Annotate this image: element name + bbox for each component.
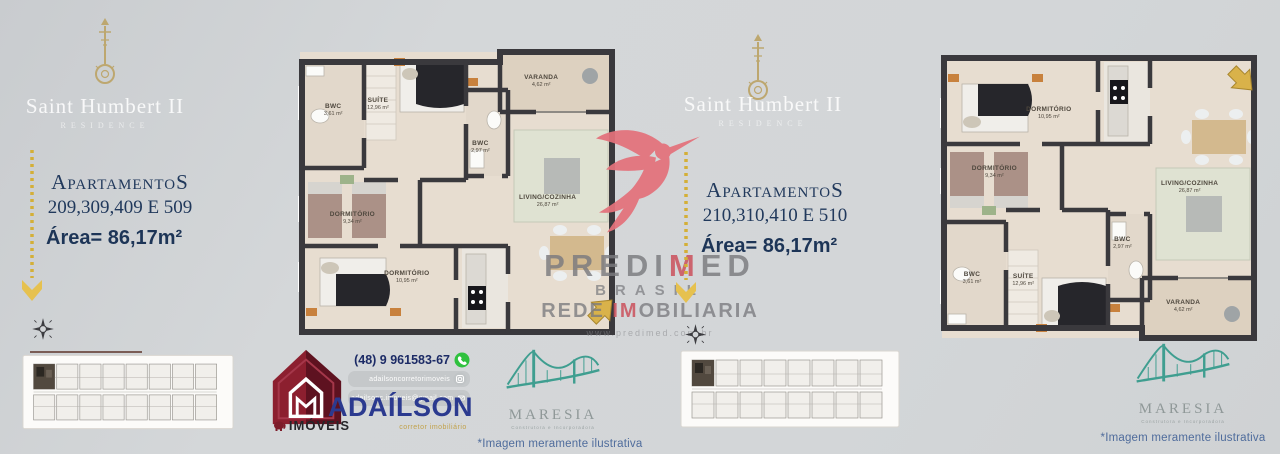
left-apartments-block: ApartamentoS 209,309,409 E 509 Área= 86,…	[40, 170, 200, 250]
instagram-handle: adailsoncorretorimoveis	[369, 376, 450, 383]
right-apartments-block: ApartamentoS 210,310,410 E 510 Área= 86,…	[695, 178, 855, 258]
floorplan-right-labels: DORMITÓRIO10,95 m²DORMITÓRIO9,34 m²SUÍTE…	[940, 56, 1260, 340]
residence-title: Saint Humbert II	[0, 94, 210, 119]
residence-subtitle: RESIDENCE	[0, 121, 210, 130]
room-label: DORMITÓRIO9,34 m²	[972, 165, 1017, 179]
room-label: DORMITÓRIO9,34 m²	[330, 211, 375, 225]
maresia-bridge-icon	[501, 344, 605, 400]
apartments-units: 210,310,410 E 510	[695, 205, 855, 227]
room-label: VARANDA4,62 m²	[1166, 299, 1200, 313]
floorplan-right: DORMITÓRIO10,95 m²DORMITÓRIO9,34 m²SUÍTE…	[940, 56, 1260, 340]
compass-icon	[30, 316, 56, 342]
room-label: BWC2,97 m²	[1113, 236, 1132, 250]
room-label: BWC3,61 m²	[324, 103, 343, 117]
divider	[30, 351, 142, 353]
room-label: DORMITÓRIO10,95 m²	[384, 270, 429, 284]
maresia-name: MARESIA	[498, 407, 608, 424]
compass-icon	[683, 322, 708, 347]
maresia-logo-block: MARESIA Construtora e Incorporadora	[1128, 338, 1238, 424]
phone-row: (48) 9 961583-67	[348, 352, 470, 368]
apartments-area: Área= 86,17m²	[695, 235, 855, 258]
residence-title: Saint Humbert II	[648, 92, 878, 117]
maresia-tagline: Construtora e Incorporadora	[498, 425, 608, 430]
maresia-bridge-icon	[1131, 338, 1235, 394]
disclaimer-text: *Imagem meramente ilustrativa	[470, 438, 650, 450]
building-siteplan-left	[22, 354, 234, 430]
flyer-canvas: Saint Humbert II RESIDENCE ApartamentoS …	[0, 0, 1280, 454]
room-label: DORMITÓRIO10,95 m²	[1026, 106, 1071, 120]
room-label: SUÍTE12,96 m²	[367, 97, 389, 111]
apartments-units: 209,309,409 E 509	[40, 197, 200, 219]
maresia-name: MARESIA	[1128, 401, 1238, 418]
agent-name: ADAÍLSON	[328, 392, 473, 423]
room-label: SUÍTE12,96 m²	[1012, 273, 1034, 287]
elephant-icon	[272, 419, 286, 432]
room-label: LIVING/COZINHA26,87 m²	[1161, 180, 1218, 194]
building-siteplan-right	[680, 350, 900, 428]
maresia-tagline: Construtora e Incorporadora	[1128, 419, 1238, 424]
room-label: BWC3,61 m²	[963, 271, 982, 285]
maresia-logo-block: MARESIA Construtora e Incorporadora	[498, 344, 608, 430]
apartments-label: ApartamentoS	[40, 170, 200, 195]
instagram-icon	[453, 372, 467, 386]
room-label: VARANDA4,62 m²	[524, 74, 558, 88]
room-label: LIVING/COZINHA26,87 m²	[519, 194, 576, 208]
apartments-area: Área= 86,17m²	[40, 227, 200, 250]
agent-role: corretor imobiliário	[398, 424, 468, 431]
whatsapp-icon	[454, 352, 470, 368]
residence-subtitle: RESIDENCE	[648, 119, 878, 128]
phone-number: (48) 9 961583-67	[354, 353, 450, 367]
instagram-row: adailsoncorretorimoveis	[348, 371, 470, 387]
room-label: BWC2,97 m²	[471, 140, 490, 154]
key-icon	[91, 14, 119, 92]
apartments-label: ApartamentoS	[695, 178, 855, 203]
disclaimer-text: *Imagem meramente ilustrativa	[1088, 432, 1278, 444]
